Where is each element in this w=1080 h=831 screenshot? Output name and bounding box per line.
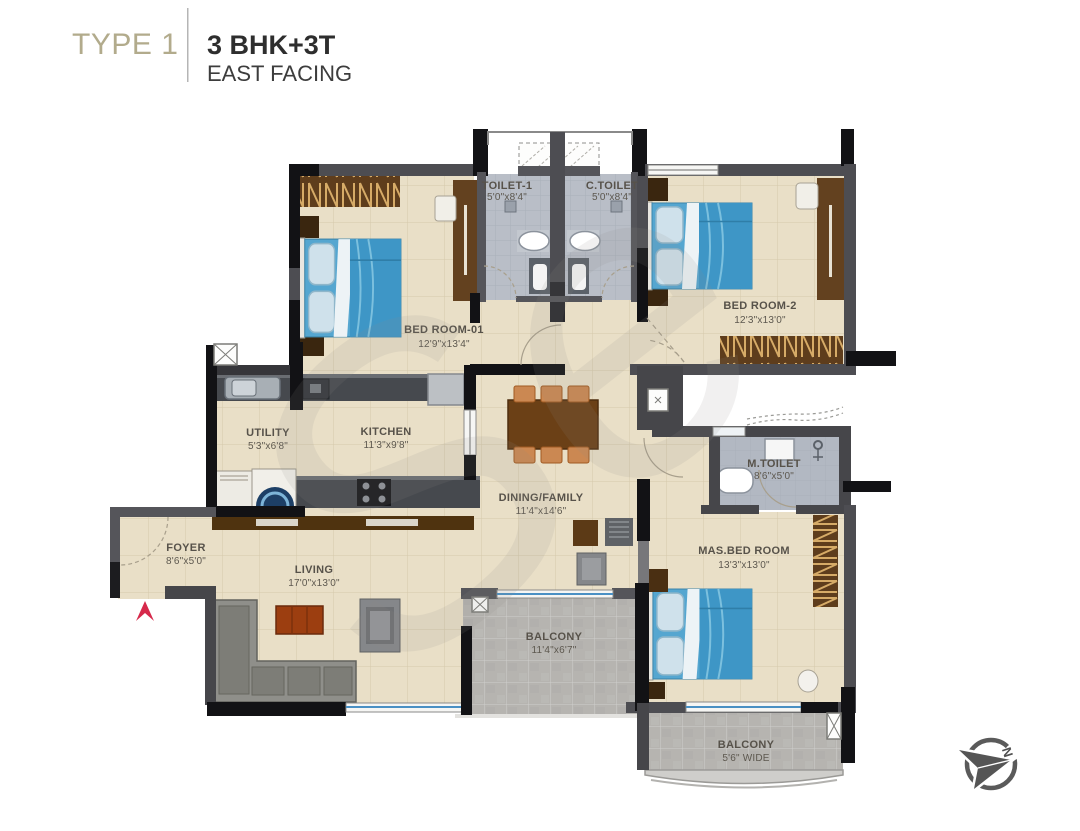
svg-text:TYPE 1: TYPE 1 — [72, 28, 178, 61]
svg-text:EAST FACING: EAST FACING — [207, 61, 352, 86]
svg-text:13'3"x13'0": 13'3"x13'0" — [718, 560, 770, 571]
svg-text:3 BHK+3T: 3 BHK+3T — [207, 30, 336, 60]
svg-text:5'6" WIDE: 5'6" WIDE — [722, 753, 769, 764]
svg-text:8'6"x5'0": 8'6"x5'0" — [166, 556, 206, 567]
svg-text:BALCONY: BALCONY — [718, 739, 775, 751]
svg-text:FOYER: FOYER — [166, 542, 205, 554]
